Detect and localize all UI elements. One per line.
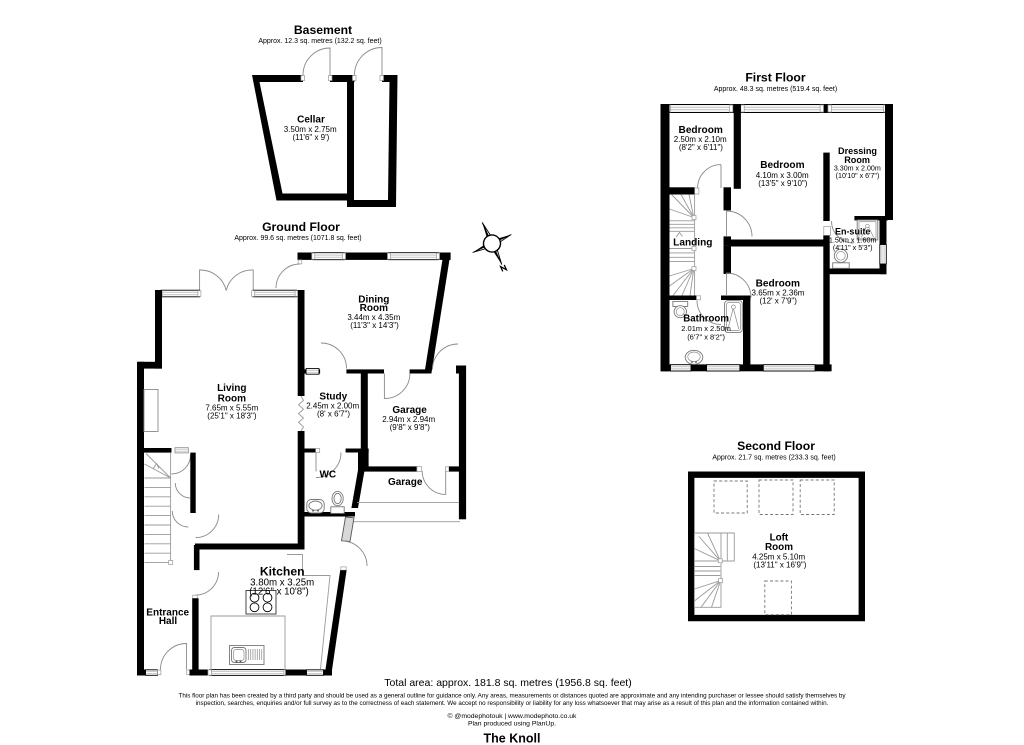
svg-text:Approx. 12.3 sq. metres (132.2: Approx. 12.3 sq. metres (132.2 sq. feet) [258,38,381,45]
svg-text:Garage: Garage [388,477,423,488]
svg-text:Total area: approx. 181.8 sq.: Total area: approx. 181.8 sq. metres (19… [384,677,631,689]
svg-text:Bedroom: Bedroom [760,160,804,171]
svg-text:(10'10" x 6'7"): (10'10" x 6'7") [836,172,880,180]
svg-text:Garage: Garage [392,405,427,416]
svg-text:Bathroom: Bathroom [683,314,729,325]
svg-text:(11'6" x 9'): (11'6" x 9') [292,133,329,142]
svg-text:Approx. 99.6 sq. metres (1071.: Approx. 99.6 sq. metres (1071.8 sq. feet… [234,235,361,242]
svg-text:(8'2" x 6'11"): (8'2" x 6'11") [679,143,723,152]
svg-text:Landing: Landing [673,237,712,248]
svg-text:WC: WC [319,469,336,480]
svg-text:Approx. 21.7 sq. metres (233.3: Approx. 21.7 sq. metres (233.3 sq. feet) [712,455,835,462]
svg-text:Room: Room [844,155,870,165]
svg-text:(4'11" x 5'3"): (4'11" x 5'3") [833,243,873,252]
svg-text:(11'3" x 14'3"): (11'3" x 14'3") [350,321,399,330]
svg-text:Approx. 48.3 sq. metres (519.4: Approx. 48.3 sq. metres (519.4 sq. feet) [714,86,837,93]
svg-text:(8' x 6'7"): (8' x 6'7") [317,410,350,419]
svg-text:First Floor: First Floor [745,71,806,85]
svg-text:The Knoll: The Knoll [484,732,541,745]
svg-text:(13'11" x 16'9"): (13'11" x 16'9") [753,560,806,569]
svg-text:Second Floor: Second Floor [737,439,815,453]
svg-text:Ground Floor: Ground Floor [262,220,340,234]
svg-text:This floor plan has been creat: This floor plan has been created by a th… [178,693,846,700]
svg-text:Cellar: Cellar [297,115,325,126]
svg-text:(25'1" x 18'3"): (25'1" x 18'3") [207,411,257,420]
svg-text:(9'8" x 9'8"): (9'8" x 9'8") [390,423,431,432]
svg-text:(12' x 7'9"): (12' x 7'9") [759,297,797,306]
svg-text:Basement: Basement [294,23,352,37]
svg-text:© @modephotouk | www.modephoto: © @modephotouk | www.modephoto.co.uk [448,712,578,720]
svg-text:Plan produced using PlanUp.: Plan produced using PlanUp. [468,721,556,728]
svg-text:inspection, searches, enquirie: inspection, searches, enquiries and/or f… [196,700,829,707]
svg-text:(12'6" x 10'8"): (12'6" x 10'8") [249,586,309,597]
svg-text:Hall: Hall [159,616,178,627]
svg-text:Room: Room [765,542,793,553]
svg-text:(6'7" x 8'2"): (6'7" x 8'2") [687,332,725,341]
svg-text:(13'5" x 9'10"): (13'5" x 9'10") [758,179,808,188]
svg-text:Living: Living [217,383,246,394]
